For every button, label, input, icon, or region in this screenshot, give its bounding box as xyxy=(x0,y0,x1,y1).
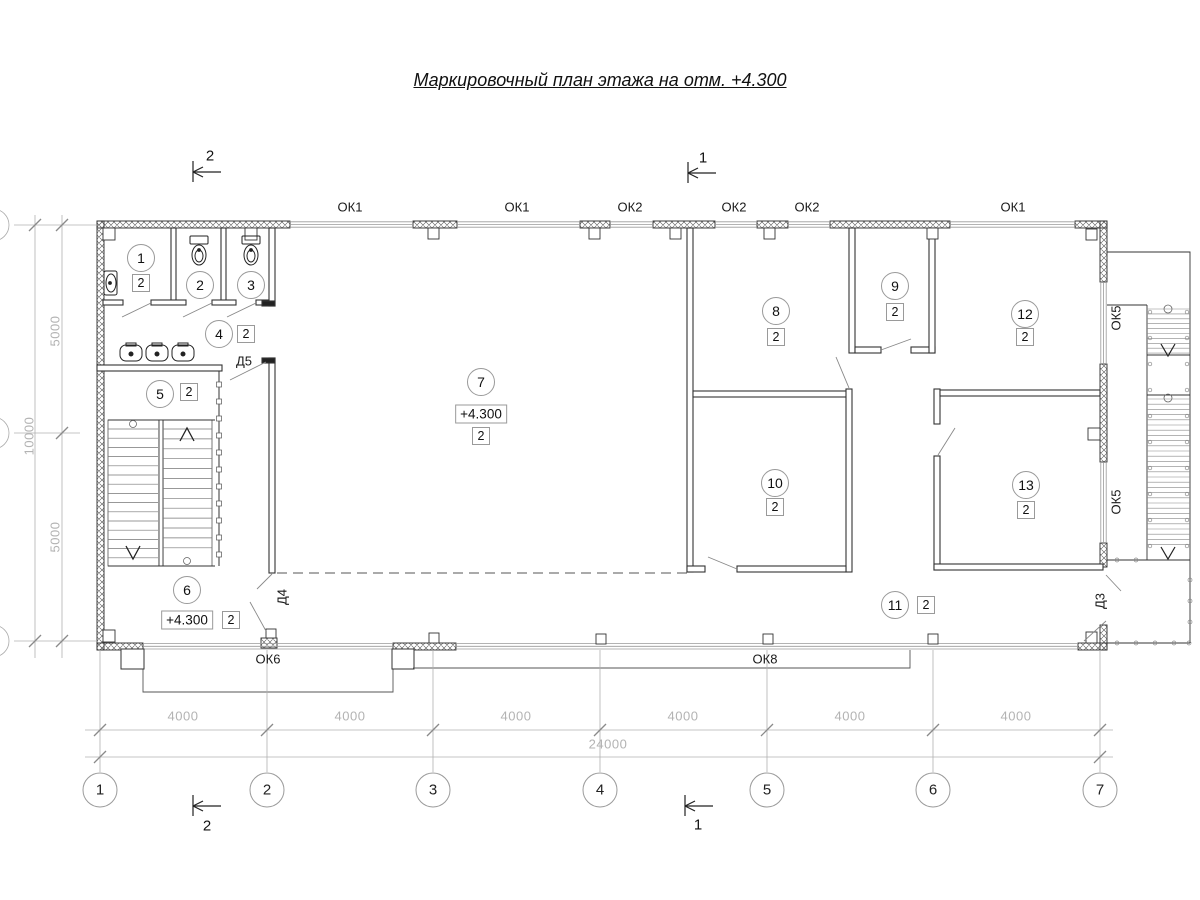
room-category-8: 2 xyxy=(767,328,785,346)
dim-4000-1: 4000 xyxy=(168,709,199,724)
window-label-ok2-b: ОК2 xyxy=(722,200,747,215)
washbasin-icon xyxy=(146,343,168,361)
dim-10000: 10000 xyxy=(22,417,37,456)
room-number-8: 8 xyxy=(762,297,790,325)
window-label-ok6: ОК6 xyxy=(256,652,281,667)
dim-4000-5: 4000 xyxy=(835,709,866,724)
room-category-9: 2 xyxy=(886,303,904,321)
section-label-1-top: 1 xyxy=(699,150,707,167)
room-category-4: 2 xyxy=(237,325,255,343)
room-number-7: 7 xyxy=(467,368,495,396)
axis-bubble-4: 4 xyxy=(583,773,618,808)
dim-5000-bottom: 5000 xyxy=(48,522,63,553)
plan-linework xyxy=(0,0,1200,900)
window-label-ok8: ОК8 xyxy=(753,652,778,667)
dim-4000-3: 4000 xyxy=(501,709,532,724)
room-category-11: 2 xyxy=(917,596,935,614)
dim-4000-6: 4000 xyxy=(1001,709,1032,724)
window-label-ok1-a: ОК1 xyxy=(338,200,363,215)
window-label-ok2-a: ОК2 xyxy=(618,200,643,215)
dim-5000-top: 5000 xyxy=(48,316,63,347)
room-category-10: 2 xyxy=(766,498,784,516)
room-number-1: 1 xyxy=(127,244,155,272)
axis-bubble-3: 3 xyxy=(416,773,451,808)
elevation-mark-7: +4.300 xyxy=(455,405,507,424)
room-number-13: 13 xyxy=(1012,471,1040,499)
window-bands xyxy=(143,222,1106,649)
room-category-5: 2 xyxy=(180,383,198,401)
room-number-12: 12 xyxy=(1011,300,1039,328)
washbasin-icon xyxy=(172,343,194,361)
room-category-7: 2 xyxy=(472,427,490,445)
toilet-icon xyxy=(190,236,208,265)
dim-4000-2: 4000 xyxy=(335,709,366,724)
room-number-10: 10 xyxy=(761,469,789,497)
room-number-4: 4 xyxy=(205,320,233,348)
section-mark-2-bottom xyxy=(193,795,221,816)
axis-bubble-1: 1 xyxy=(83,773,118,808)
window-label-ok1-b: ОК1 xyxy=(505,200,530,215)
room-category-13: 2 xyxy=(1017,501,1035,519)
window-label-ok2-c: ОК2 xyxy=(795,200,820,215)
room-number-6: 6 xyxy=(173,576,201,604)
dimension-lines xyxy=(0,209,1113,772)
window-label-ok1-c: ОК1 xyxy=(1001,200,1026,215)
section-mark-1-bottom xyxy=(685,795,713,816)
floor-plan-drawing: Маркировочный план этажа на отм. +4.300 xyxy=(0,0,1200,900)
room-category-6: 2 xyxy=(222,611,240,629)
room-number-9: 9 xyxy=(881,272,909,300)
dim-24000: 24000 xyxy=(589,737,628,752)
door-label-d5: Д5 xyxy=(236,354,252,369)
door-label-d3: Д3 xyxy=(1093,593,1108,609)
dim-4000-4: 4000 xyxy=(668,709,699,724)
axis-bubble-7: 7 xyxy=(1083,773,1118,808)
section-label-2-top: 2 xyxy=(206,148,214,165)
room-number-2: 2 xyxy=(186,271,214,299)
axis-bubble-6: 6 xyxy=(916,773,951,808)
room-number-5: 5 xyxy=(146,380,174,408)
window-label-ok5-b: ОК5 xyxy=(1109,490,1124,515)
washbasin-icon xyxy=(120,343,142,361)
room-category-1: 2 xyxy=(132,274,150,292)
window-label-ok5-a: ОК5 xyxy=(1109,306,1124,331)
axis-bubble-2: 2 xyxy=(250,773,285,808)
entrance-porch xyxy=(121,649,910,692)
section-label-1-bottom: 1 xyxy=(694,817,702,834)
room-category-12: 2 xyxy=(1016,328,1034,346)
axis-bubble-5: 5 xyxy=(750,773,785,808)
urinal-icon xyxy=(104,271,117,295)
elevation-mark-6: +4.300 xyxy=(161,611,213,630)
section-label-2-bottom: 2 xyxy=(203,818,211,835)
room-number-11: 11 xyxy=(881,591,909,619)
room-number-3: 3 xyxy=(237,271,265,299)
door-label-d4: Д4 xyxy=(275,589,290,605)
